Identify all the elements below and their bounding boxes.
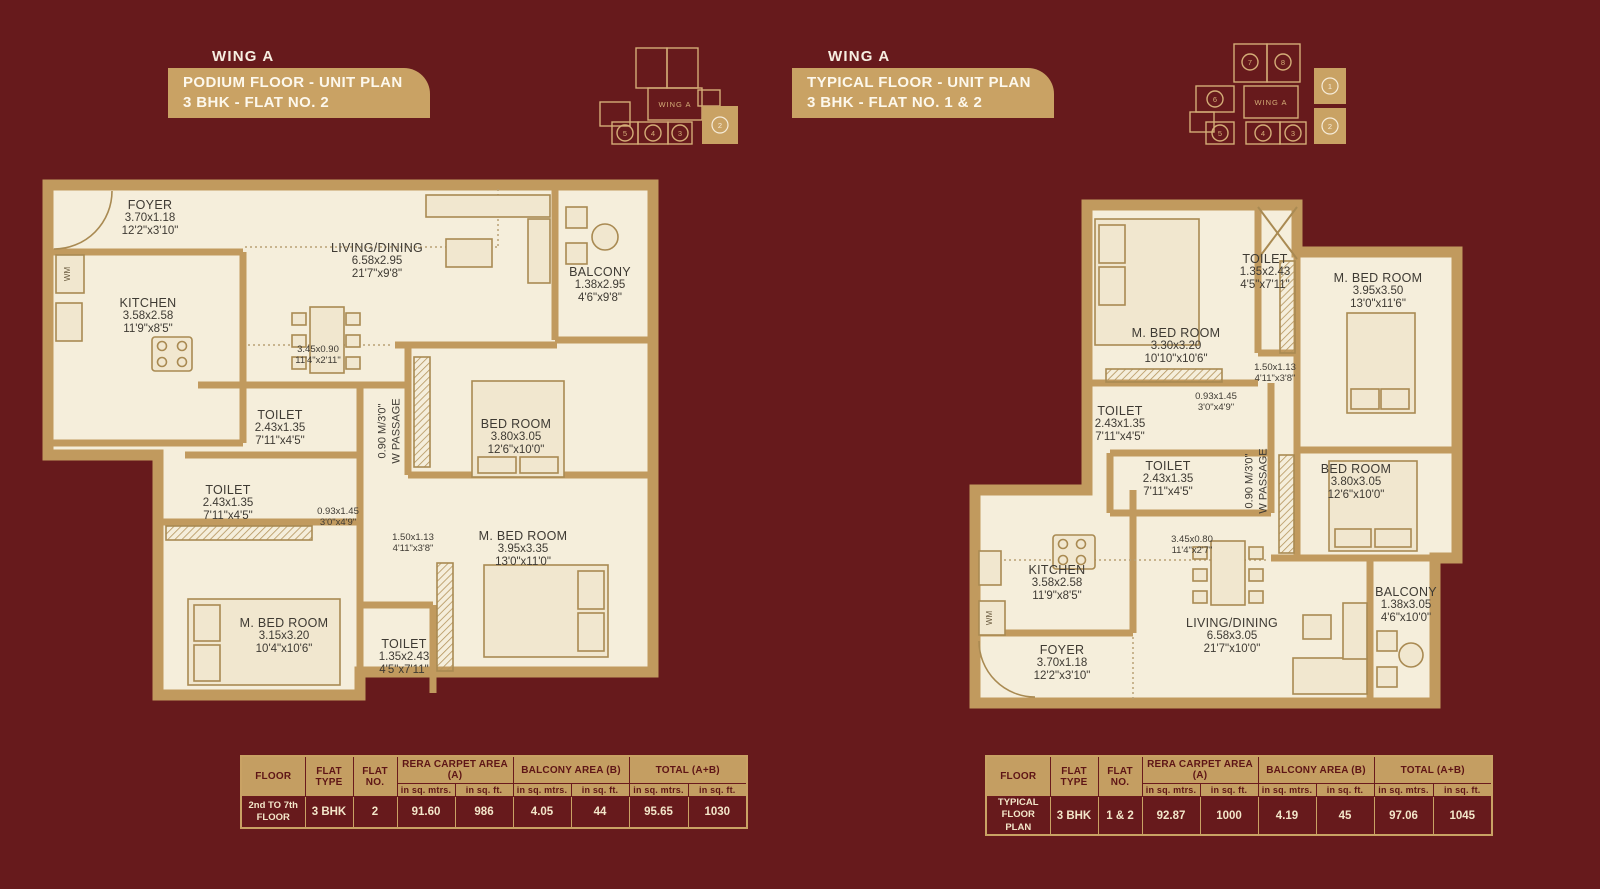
- subheader-sq-ft: in sq. ft.: [1433, 784, 1492, 797]
- col-header-floor: FLOOR: [241, 756, 305, 797]
- unit-number-6: 6: [1213, 95, 1217, 104]
- room-label-living-dining: LIVING/DINING6.58x3.0521'7"x10'0": [1186, 616, 1278, 656]
- unit-number-2-highlighted: 2: [718, 121, 722, 130]
- washing-machine-label: WM: [985, 611, 994, 626]
- cell-balcony-ft: 44: [571, 797, 629, 829]
- room-dim-ft: 11'9"x8'5": [1029, 590, 1086, 603]
- room-dim-ft: 7'11"x4'5": [1143, 486, 1194, 499]
- room-label-toilet-1: TOILET2.43x1.357'11"x4'5": [255, 408, 306, 448]
- room-label-master-bedroom-2: M. BED ROOM3.15x3.2010'4"x10'6": [240, 616, 329, 656]
- banner-left-line2: 3 BHK - FLAT NO. 2: [183, 93, 430, 113]
- unit-number-5: 5: [1218, 129, 1222, 138]
- room-dim-m: 1.38x2.95: [569, 279, 631, 292]
- room-label-toilet-2: TOILET2.43x1.357'11"x4'5": [1095, 404, 1146, 444]
- brochure-page: { "header_left": {"wing":"WING A","banne…: [0, 0, 1600, 889]
- room-label-master-bedroom-1: M. BED ROOM3.95x3.3513'0"x11'0": [479, 529, 568, 569]
- col-header-flat-no: FLAT NO.: [353, 756, 397, 797]
- room-dim-ft: 12'6"x10'0": [1321, 489, 1391, 502]
- unit-number-7: 7: [1248, 58, 1252, 67]
- unit-number-3: 3: [1291, 129, 1295, 138]
- room-label-toilet-1: TOILET1.35x2.434'5"x7'11": [1240, 252, 1291, 292]
- unit-number-8: 8: [1281, 58, 1285, 67]
- room-dim-m: 1.35x2.43: [379, 651, 430, 664]
- subheader-sq-ft: in sq. ft.: [455, 784, 513, 797]
- room-dim-m: 2.43x1.35: [255, 422, 306, 435]
- cell-rera-mtrs: 91.60: [397, 797, 455, 829]
- cell-balcony-ft: 45: [1316, 797, 1374, 836]
- cell-flat-no: 1 & 2: [1098, 797, 1142, 836]
- cell-balcony-mtrs: 4.19: [1258, 797, 1316, 836]
- washing-machine-label: WM: [63, 267, 72, 282]
- area-table-right: FLOOR FLAT TYPE FLAT NO. RERA CARPET ARE…: [985, 755, 1493, 836]
- room-name: TOILET: [1240, 252, 1291, 266]
- room-name: TOILET: [379, 637, 430, 651]
- wing-title-right: WING A: [828, 48, 890, 65]
- banner-right-line1: TYPICAL FLOOR - UNIT PLAN: [807, 73, 1054, 93]
- room-dim-ft: 4'6"x10'0": [1375, 612, 1437, 625]
- col-header-balcony-area: BALCONY AREA (B): [1258, 756, 1374, 784]
- cell-rera-mtrs: 92.87: [1142, 797, 1200, 836]
- room-dim-m: 3.58x2.58: [1029, 577, 1086, 590]
- cell-floor: 2nd TO 7thFLOOR: [241, 797, 305, 829]
- stove-icon: [152, 337, 192, 371]
- subheader-sq-mtrs: in sq. mtrs.: [629, 784, 688, 797]
- subheader-sq-ft: in sq. ft.: [1316, 784, 1374, 797]
- room-label-foyer: FOYER3.70x1.1812'2"x3'10": [122, 198, 179, 238]
- sink-icon: [56, 303, 82, 341]
- unit-number-1-highlighted: 1: [1328, 82, 1332, 91]
- subheader-sq-mtrs: in sq. mtrs.: [1374, 784, 1433, 797]
- keyplan-block: [636, 48, 667, 88]
- room-name: BALCONY: [569, 265, 631, 279]
- room-label-toilet-3: TOILET2.43x1.357'11"x4'5": [1143, 459, 1194, 499]
- room-dim-m: 3.80x3.05: [1321, 476, 1391, 489]
- unit-number-3: 3: [678, 129, 682, 138]
- subheader-sq-mtrs: in sq. mtrs.: [397, 784, 455, 797]
- dim-label-093: 0.93x1.453'0"x4'9": [317, 507, 359, 529]
- passage-label: 0.90 M/3'0"W PASSAGE: [1243, 448, 1271, 513]
- cell-total-mtrs: 97.06: [1374, 797, 1433, 836]
- passage-label: 0.90 M/3'0"W PASSAGE: [376, 398, 404, 463]
- keyplan-wing-label: WING A: [658, 100, 691, 109]
- wardrobe-icon: [414, 357, 430, 467]
- room-dim-ft: 13'0"x11'6": [1334, 298, 1423, 311]
- keyplan-left: WING A 5 4 3 2: [590, 44, 750, 150]
- cell-balcony-mtrs: 4.05: [513, 797, 571, 829]
- subheader-sq-ft: in sq. ft.: [571, 784, 629, 797]
- room-dim-m: 3.95x3.50: [1334, 285, 1423, 298]
- cell-total-mtrs: 95.65: [629, 797, 688, 829]
- room-label-bedroom: BED ROOM3.80x3.0512'6"x10'0": [481, 417, 551, 457]
- balcony-table-icon: [1399, 643, 1423, 667]
- room-name: TOILET: [255, 408, 306, 422]
- room-dim-ft: 13'0"x11'0": [479, 556, 568, 569]
- col-header-total-area: TOTAL (A+B): [1374, 756, 1492, 784]
- cell-floor: TYPICALFLOOR PLAN: [986, 797, 1050, 836]
- keyplan-left-drawing: WING A 5 4 3 2: [590, 44, 750, 150]
- room-label-living-dining: LIVING/DINING6.58x2.9521'7"x9'8": [331, 241, 423, 281]
- room-label-balcony: BALCONY1.38x3.054'6"x10'0": [1375, 585, 1437, 625]
- keyplan-right: WING A 7 8 6 5 4 3 1 2: [1186, 42, 1350, 160]
- cell-total-ft: 1045: [1433, 797, 1492, 836]
- room-name: BED ROOM: [481, 417, 551, 431]
- room-label-bedroom: BED ROOM3.80x3.0512'6"x10'0": [1321, 462, 1391, 502]
- room-dim-m: 3.30x3.20: [1132, 340, 1221, 353]
- room-dim-ft: 10'10"x10'6": [1132, 353, 1221, 366]
- cell-flat-no: 2: [353, 797, 397, 829]
- dim-label-093: 0.93x1.453'0"x4'9": [1195, 392, 1237, 414]
- wing-title-left: WING A: [212, 48, 274, 65]
- area-table-left: FLOOR FLAT TYPE FLAT NO. RERA CARPET ARE…: [240, 755, 748, 829]
- room-name: KITCHEN: [120, 296, 177, 310]
- balcony-chair-icon: [566, 207, 587, 228]
- room-dim-m: 3.70x1.18: [1034, 657, 1091, 670]
- room-dim-ft: 10'4"x10'6": [240, 643, 329, 656]
- room-dim-m: 3.15x3.20: [240, 630, 329, 643]
- room-name: BALCONY: [1375, 585, 1437, 599]
- unit-number-5: 5: [623, 129, 627, 138]
- col-header-balcony-area: BALCONY AREA (B): [513, 756, 629, 784]
- room-dim-ft: 7'11"x4'5": [255, 435, 306, 448]
- room-dim-m: 2.43x1.35: [1095, 418, 1146, 431]
- room-label-toilet-3: TOILET1.35x2.434'5"x7'11": [379, 637, 430, 677]
- wardrobe-icon: [437, 563, 453, 671]
- room-dim-m: 2.43x1.35: [203, 497, 254, 510]
- dim-label-150: 1.50x1.134'11"x3'8": [392, 533, 434, 555]
- subheader-sq-ft: in sq. ft.: [688, 784, 747, 797]
- floor-plan-right: WM M. BED ROOM3.30x3.2010'10"x10'6" TOIL…: [973, 203, 1461, 705]
- table-row: 2nd TO 7thFLOOR 3 BHK 2 91.60 986 4.05 4…: [241, 797, 747, 829]
- room-dim-m: 3.58x2.58: [120, 310, 177, 323]
- room-name: KITCHEN: [1029, 563, 1086, 577]
- room-name: FOYER: [122, 198, 179, 212]
- unit-number-2-highlighted: 2: [1328, 122, 1332, 131]
- room-name: LIVING/DINING: [331, 241, 423, 255]
- banner-left-line1: PODIUM FLOOR - UNIT PLAN: [183, 73, 430, 93]
- room-name: M. BED ROOM: [479, 529, 568, 543]
- subheader-sq-ft: in sq. ft.: [1200, 784, 1258, 797]
- col-header-flat-no: FLAT NO.: [1098, 756, 1142, 797]
- cell-rera-ft: 1000: [1200, 797, 1258, 836]
- room-dim-m: 1.35x2.43: [1240, 266, 1291, 279]
- wardrobe-icon: [1279, 455, 1294, 553]
- col-header-flat-type: FLAT TYPE: [1050, 756, 1098, 797]
- room-name: TOILET: [1095, 404, 1146, 418]
- floor-plan-left: WM FOYER3.70x1.1812'2"x3'10" KITCHEN3.58…: [48, 185, 660, 700]
- dim-label-passage-345: 3.45x0.9011'4"x2'11": [295, 345, 340, 367]
- balcony-chair-icon: [1377, 631, 1397, 651]
- wardrobe-icon: [166, 526, 312, 540]
- col-header-flat-type: FLAT TYPE: [305, 756, 353, 797]
- room-label-kitchen: KITCHEN3.58x2.5811'9"x8'5": [120, 296, 177, 336]
- sofa-icon: [1293, 658, 1367, 694]
- dim-label-passage-345: 3.45x0.8011'4"x2'7": [1171, 535, 1213, 557]
- room-dim-ft: 12'6"x10'0": [481, 444, 551, 457]
- room-label-foyer: FOYER3.70x1.1812'2"x3'10": [1034, 643, 1091, 683]
- banner-right-line2: 3 BHK - FLAT NO. 1 & 2: [807, 93, 1054, 113]
- subheader-sq-mtrs: in sq. mtrs.: [513, 784, 571, 797]
- banner-left: PODIUM FLOOR - UNIT PLAN 3 BHK - FLAT NO…: [168, 68, 430, 118]
- room-name: BED ROOM: [1321, 462, 1391, 476]
- room-label-master-bedroom-2: M. BED ROOM3.95x3.5013'0"x11'6": [1334, 271, 1423, 311]
- room-dim-m: 3.80x3.05: [481, 431, 551, 444]
- unit-number-4: 4: [651, 129, 655, 138]
- room-dim-ft: 4'6"x9'8": [569, 292, 631, 305]
- col-header-rera-carpet-area: RERA CARPET AREA (A): [397, 756, 513, 784]
- balcony-chair-icon: [566, 243, 587, 264]
- room-name: M. BED ROOM: [1132, 326, 1221, 340]
- dining-table-icon: [1211, 541, 1245, 605]
- cell-rera-ft: 986: [455, 797, 513, 829]
- keyplan-wing-label: WING A: [1254, 98, 1287, 107]
- room-dim-m: 3.70x1.18: [122, 212, 179, 225]
- banner-right: TYPICAL FLOOR - UNIT PLAN 3 BHK - FLAT N…: [792, 68, 1054, 118]
- col-header-total-area: TOTAL (A+B): [629, 756, 747, 784]
- room-name: TOILET: [203, 483, 254, 497]
- room-dim-m: 6.58x2.95: [331, 255, 423, 268]
- table-row: TYPICALFLOOR PLAN 3 BHK 1 & 2 92.87 1000…: [986, 797, 1492, 836]
- balcony-table-icon: [592, 224, 618, 250]
- keyplan-block: [698, 90, 720, 106]
- wardrobe-icon: [1106, 369, 1222, 382]
- balcony-chair-icon: [1377, 667, 1397, 687]
- room-dim-ft: 11'9"x8'5": [120, 323, 177, 336]
- keyplan-block: [667, 48, 698, 88]
- room-dim-ft: 12'2"x3'10": [1034, 670, 1091, 683]
- cell-flat-type: 3 BHK: [1050, 797, 1098, 836]
- room-dim-ft: 7'11"x4'5": [1095, 431, 1146, 444]
- room-label-master-bedroom-1: M. BED ROOM3.30x3.2010'10"x10'6": [1132, 326, 1221, 366]
- keyplan-right-drawing: WING A 7 8 6 5 4 3 1 2: [1186, 42, 1350, 160]
- room-dim-ft: 12'2"x3'10": [122, 225, 179, 238]
- cell-total-ft: 1030: [688, 797, 747, 829]
- col-header-rera-carpet-area: RERA CARPET AREA (A): [1142, 756, 1258, 784]
- unit-number-4: 4: [1261, 129, 1265, 138]
- room-dim-m: 3.95x3.35: [479, 543, 568, 556]
- room-label-toilet-2: TOILET2.43x1.357'11"x4'5": [203, 483, 254, 523]
- sink-icon: [979, 551, 1001, 585]
- col-header-floor: FLOOR: [986, 756, 1050, 797]
- room-name: FOYER: [1034, 643, 1091, 657]
- room-dim-ft: 4'5"x7'11": [1240, 279, 1291, 292]
- room-dim-ft: 4'5"x7'11": [379, 664, 430, 677]
- room-dim-m: 1.38x3.05: [1375, 599, 1437, 612]
- subheader-sq-mtrs: in sq. mtrs.: [1142, 784, 1200, 797]
- room-name: TOILET: [1143, 459, 1194, 473]
- room-dim-m: 6.58x3.05: [1186, 630, 1278, 643]
- room-name: LIVING/DINING: [1186, 616, 1278, 630]
- room-label-kitchen: KITCHEN3.58x2.5811'9"x8'5": [1029, 563, 1086, 603]
- sofa-icon: [426, 195, 550, 217]
- room-name: M. BED ROOM: [1334, 271, 1423, 285]
- room-dim-ft: 21'7"x9'8": [331, 268, 423, 281]
- room-dim-ft: 7'11"x4'5": [203, 510, 254, 523]
- room-dim-m: 2.43x1.35: [1143, 473, 1194, 486]
- subheader-sq-mtrs: in sq. mtrs.: [1258, 784, 1316, 797]
- room-name: M. BED ROOM: [240, 616, 329, 630]
- cell-flat-type: 3 BHK: [305, 797, 353, 829]
- room-label-balcony: BALCONY1.38x2.954'6"x9'8": [569, 265, 631, 305]
- room-dim-ft: 21'7"x10'0": [1186, 643, 1278, 656]
- dim-label-150: 1.50x1.134'11"x3'8": [1254, 363, 1296, 385]
